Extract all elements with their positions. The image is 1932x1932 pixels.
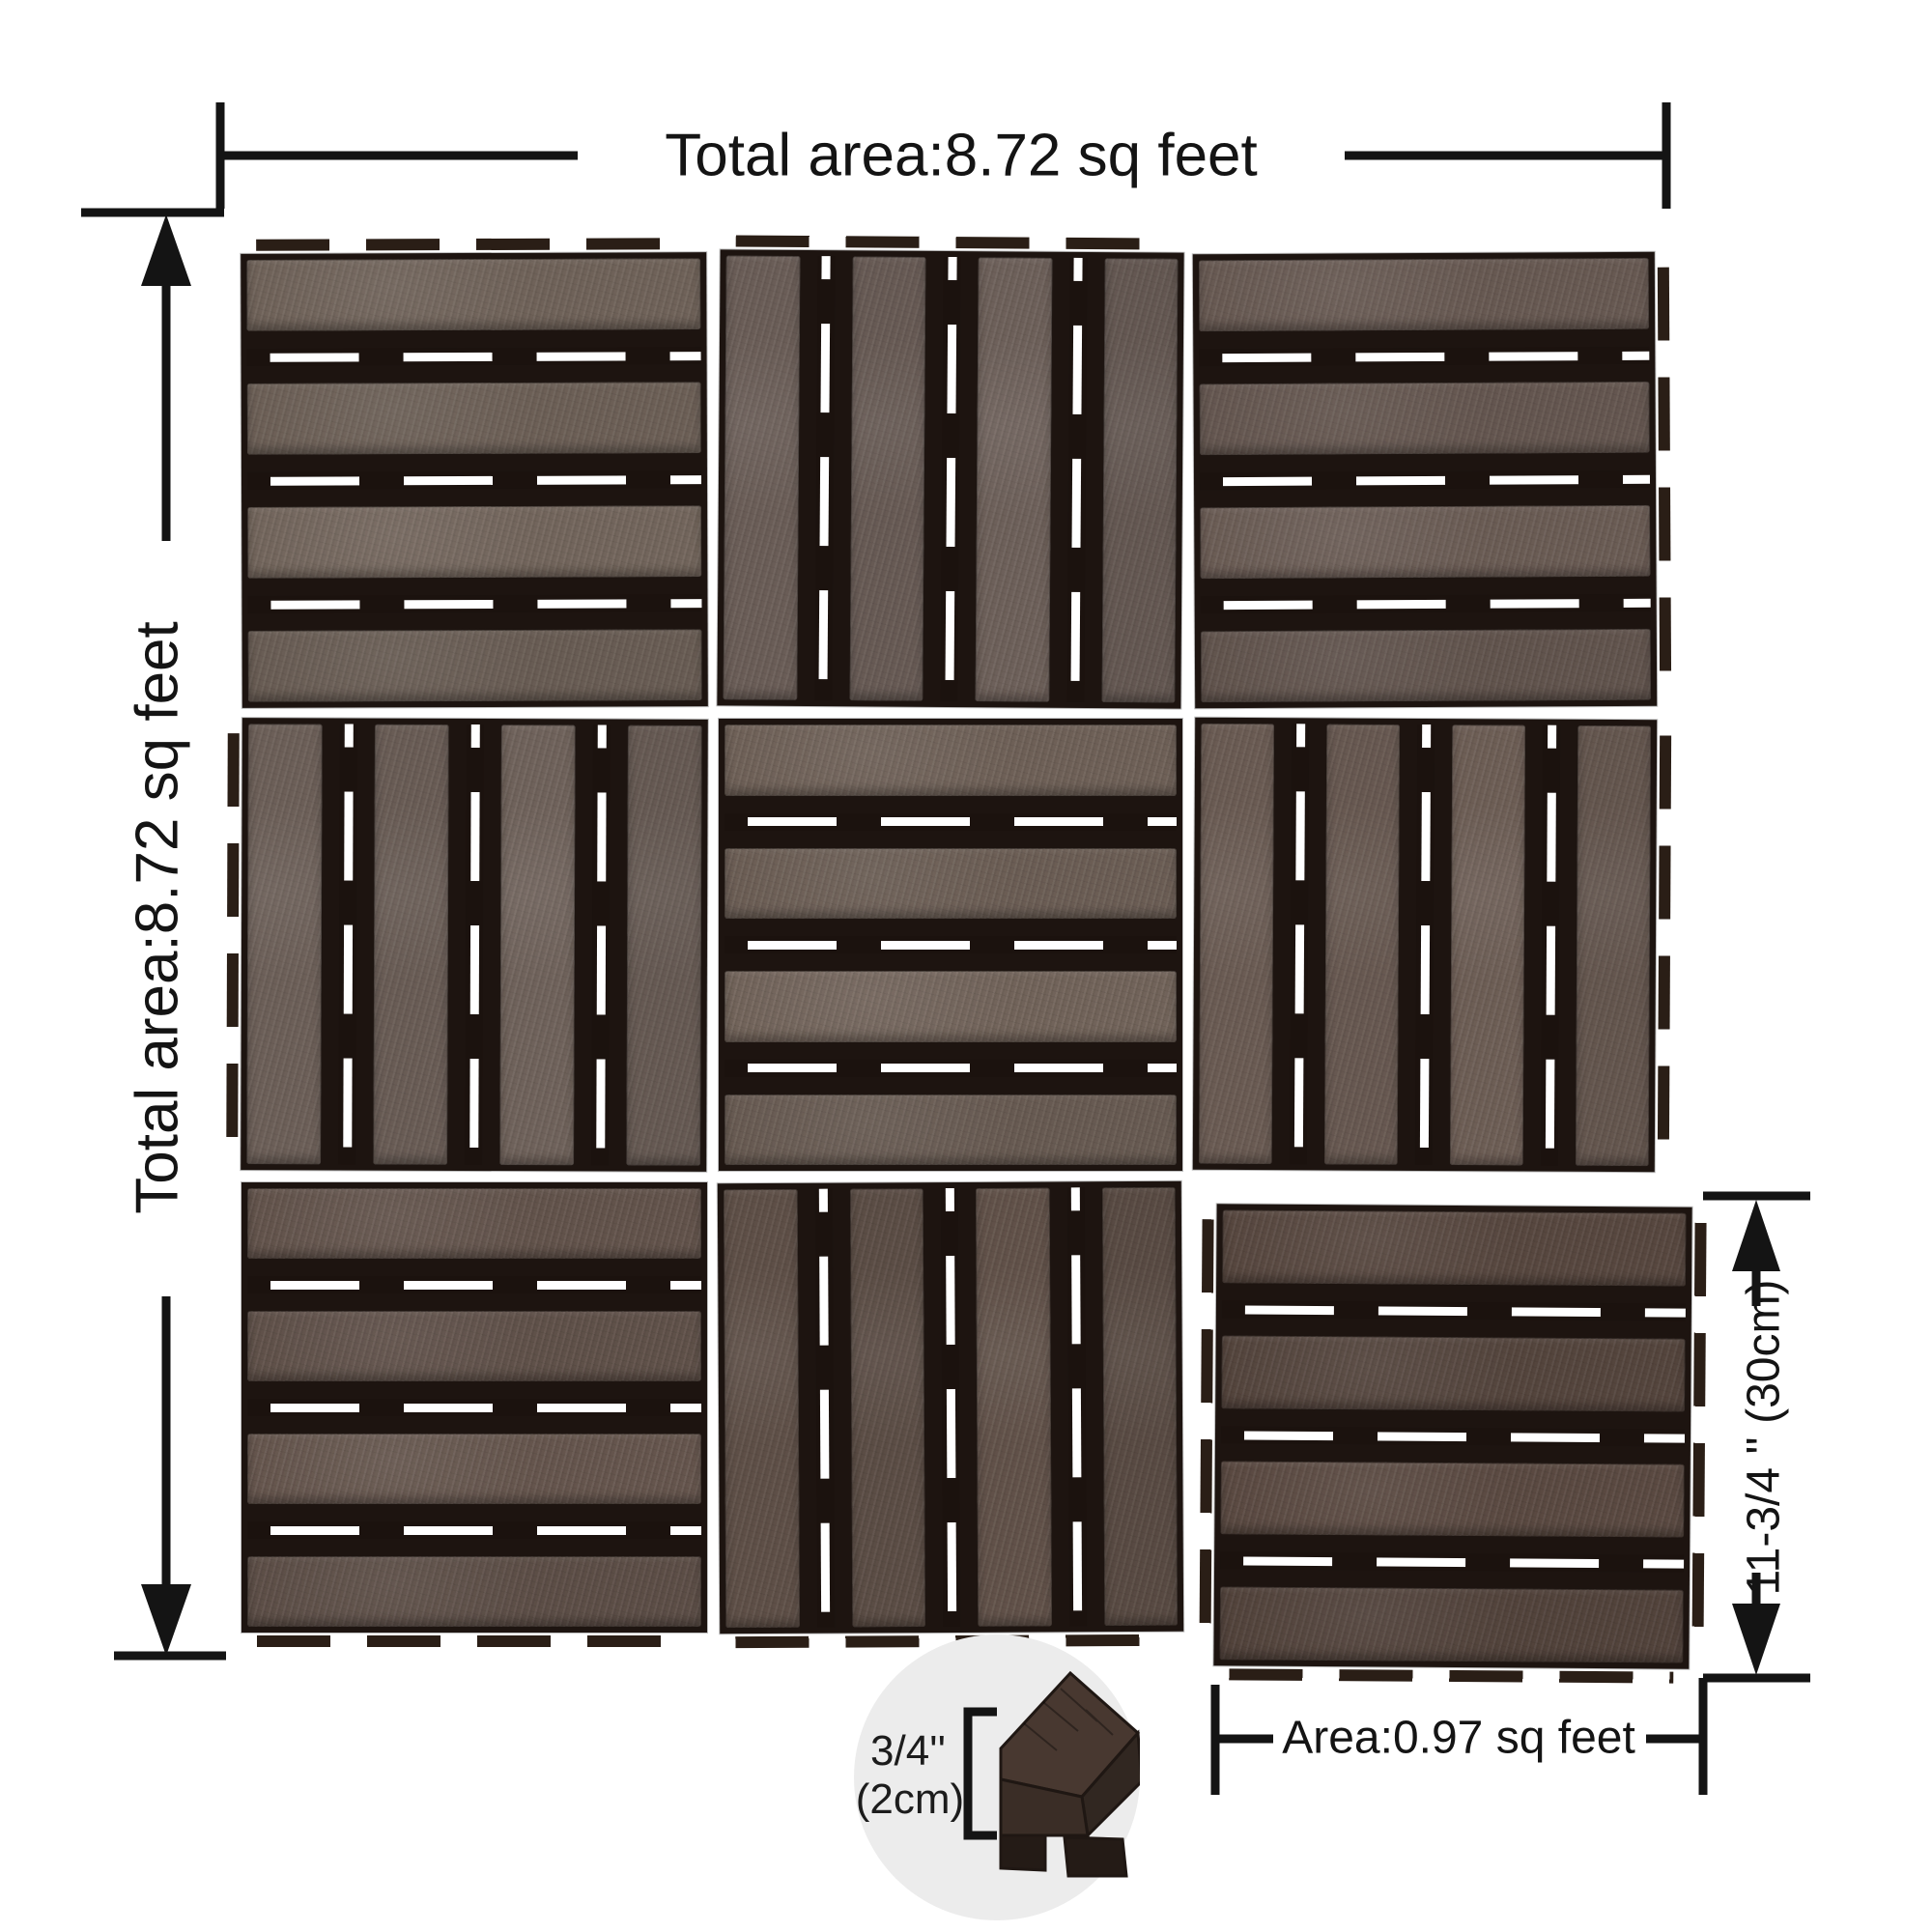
slat-gap <box>724 813 1177 831</box>
slat-gap <box>247 1276 701 1293</box>
slat-gap <box>247 347 701 366</box>
tile-slat <box>1101 258 1179 703</box>
tile-slat <box>1220 1461 1685 1537</box>
slat-gap <box>338 724 357 1165</box>
tile-top-left <box>241 252 708 708</box>
interlock-tabs-bottom <box>257 1635 692 1647</box>
interlock-tabs-bottom <box>1229 1668 1673 1683</box>
tile-slat <box>247 1188 701 1259</box>
tile-slat <box>1576 725 1651 1166</box>
tile-slat <box>975 257 1052 702</box>
tile-single <box>1213 1204 1691 1668</box>
interlock-tabs-right <box>1658 268 1671 691</box>
slat-gap <box>814 1189 834 1628</box>
slat-gap <box>591 724 611 1165</box>
tile-middle-left <box>241 718 708 1172</box>
tile-slat <box>1324 724 1400 1164</box>
slat-gap <box>1541 725 1560 1166</box>
tile-slat <box>1200 505 1650 579</box>
tile-slat <box>976 1187 1052 1626</box>
tile-slat <box>1219 1586 1684 1662</box>
interlock-tabs-right <box>1691 1223 1706 1654</box>
slat-gap <box>941 1188 960 1627</box>
tile-slat <box>499 724 576 1165</box>
tile-slat <box>247 505 701 579</box>
slat-gap <box>247 1521 701 1539</box>
tile-slat <box>724 1189 800 1628</box>
interlock-tabs-left <box>1199 1219 1213 1650</box>
tile-slat <box>1201 629 1651 702</box>
thickness-metric-label: (2cm) <box>835 1776 985 1824</box>
tile-slat <box>724 724 1177 796</box>
tile-slat <box>724 848 1177 920</box>
tile-slat <box>724 1094 1177 1166</box>
tile-slat <box>723 255 800 700</box>
tile-slat <box>1450 724 1525 1165</box>
tile-slat <box>246 724 323 1164</box>
slat-gap <box>247 470 701 490</box>
tile-slat <box>1221 1335 1686 1411</box>
product-dimension-diagram: Total area:8.72 sq feet Total area:8.72 … <box>0 0 1932 1932</box>
slat-gap <box>1199 347 1649 366</box>
tile-bottom-center <box>718 1181 1183 1634</box>
slat-gap <box>940 257 960 701</box>
slat-gap <box>1221 1426 1685 1446</box>
slat-gap <box>1066 1187 1086 1626</box>
slat-gap <box>1290 724 1309 1164</box>
tile-slat <box>849 256 926 701</box>
tile-slat <box>247 1556 701 1627</box>
tile-middle-right <box>1193 718 1657 1172</box>
interlock-tabs-top <box>256 238 691 251</box>
tile-height-label: 11-3/4 '' (30cm) <box>1738 1280 1791 1596</box>
slat-gap <box>1200 470 1650 490</box>
tile-top-center <box>717 249 1183 708</box>
tile-slat <box>246 258 700 331</box>
tile-slat <box>1199 258 1649 331</box>
interlock-tabs-right <box>1658 735 1671 1156</box>
slat-gap <box>1222 1300 1686 1321</box>
total-area-top-label: Total area:8.72 sq feet <box>665 122 1258 190</box>
thickness-value-label: 3/4'' <box>856 1727 960 1776</box>
slat-gap <box>247 1399 701 1416</box>
tile-slat <box>1199 382 1649 455</box>
tile-slat <box>373 724 449 1165</box>
total-area-left-label: Total area:8.72 sq feet <box>124 621 192 1214</box>
tile-slat <box>1199 724 1274 1164</box>
slat-gap <box>724 1060 1177 1077</box>
corner-wedge-icon <box>1001 1673 1140 1876</box>
tile-slat <box>1101 1187 1178 1626</box>
slat-gap <box>1201 594 1651 613</box>
tile-slat <box>626 725 702 1166</box>
slat-gap <box>465 724 484 1165</box>
tile-slat <box>1222 1209 1687 1286</box>
slat-gap <box>247 594 701 613</box>
slat-gap <box>724 936 1177 953</box>
tile-bottom-left <box>241 1182 707 1633</box>
tile-top-right <box>1193 252 1657 708</box>
slat-gap <box>1066 258 1087 702</box>
tile-middle-center <box>719 719 1182 1171</box>
tile-slat <box>849 1188 925 1627</box>
slat-gap <box>814 256 835 700</box>
tile-slat <box>247 1434 701 1504</box>
tile-slat <box>247 382 701 455</box>
interlock-tabs-left <box>226 733 240 1154</box>
tile-area-label: Area:0.97 sq feet <box>1282 1712 1635 1765</box>
tile-slat <box>724 971 1177 1042</box>
slat-gap <box>1415 724 1435 1165</box>
tile-slat <box>248 629 702 702</box>
slat-gap <box>1220 1551 1684 1572</box>
tile-slat <box>247 1311 701 1381</box>
interlock-tabs-top <box>736 235 1169 249</box>
